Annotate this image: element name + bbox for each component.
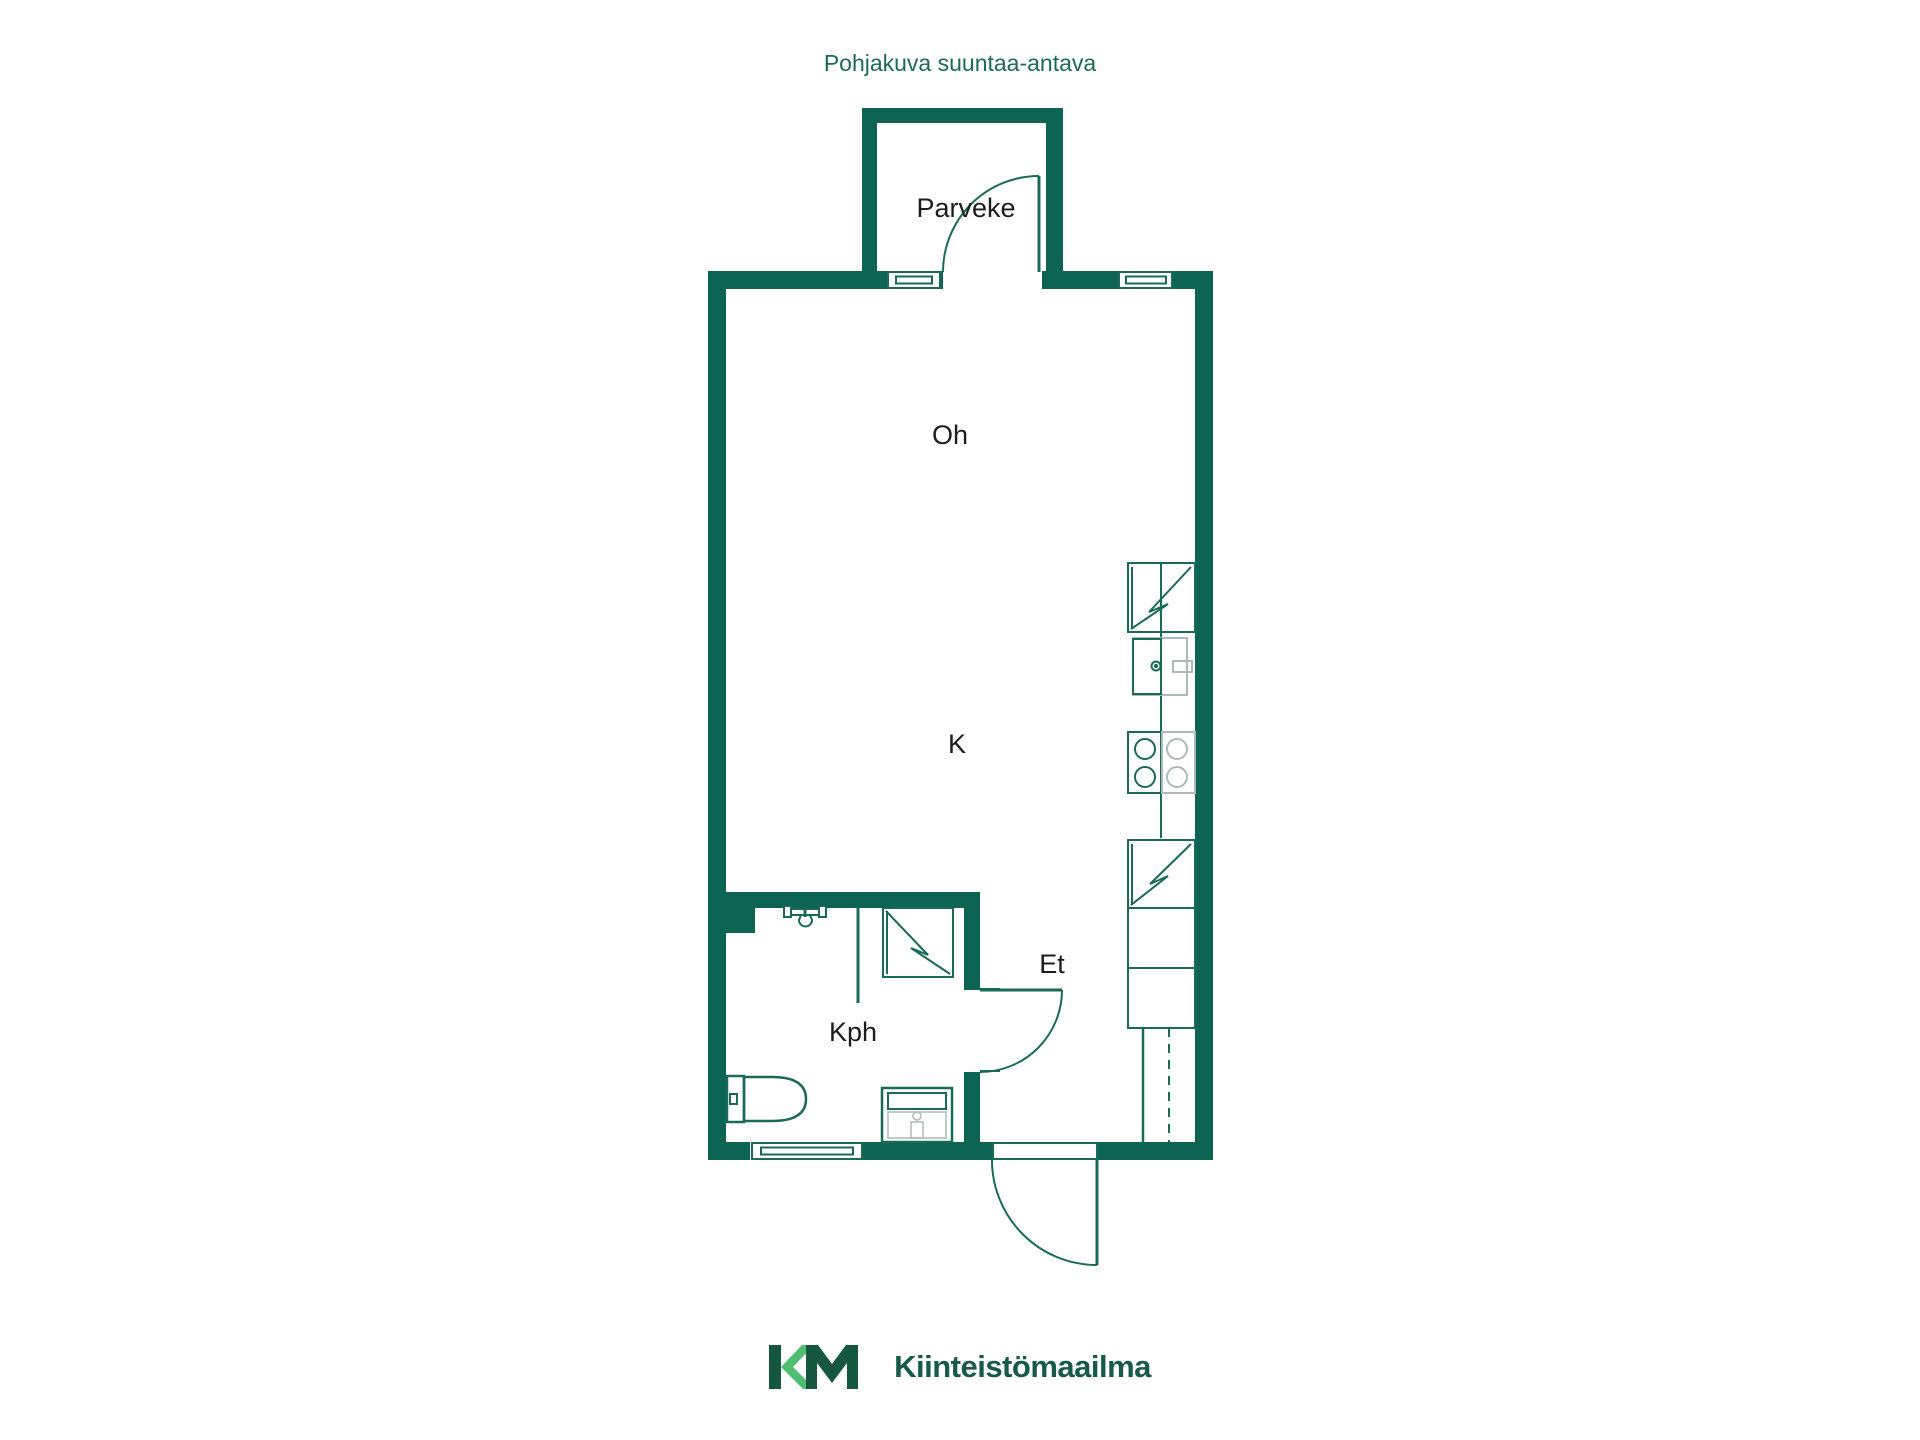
vanity-top-drawer [888, 1093, 946, 1109]
balcony-wall-left [862, 108, 877, 272]
vanity-faucet-dot [913, 1112, 921, 1120]
toilet-button [730, 1094, 737, 1104]
entry-door [992, 1143, 1097, 1265]
balcony-door-opening [943, 271, 1042, 289]
kitchen-fixtures [1128, 563, 1195, 1142]
wall-openings [750, 271, 1173, 1160]
bathroom-door-opening [964, 990, 980, 1072]
brand-footer: Kiinteistömaailma [0, 1344, 1920, 1390]
logo-m [806, 1345, 858, 1389]
bathroom-wall-top [726, 892, 980, 908]
room-label-kph: Kph [829, 1017, 877, 1047]
outer-wall-left [708, 271, 726, 1160]
balcony-door [943, 176, 1039, 272]
shower-icon [784, 906, 826, 927]
burner [1167, 739, 1187, 759]
sink-drain [1152, 662, 1161, 671]
km-logo-icon [769, 1344, 864, 1390]
cabinet [1128, 908, 1195, 968]
stove-icon [1128, 732, 1195, 793]
balcony-wall-top [862, 108, 1063, 123]
door-threshold [993, 1143, 1097, 1159]
floorplan-canvas: Parveke Oh K Et Kph [0, 0, 1920, 1440]
toilet-icon [727, 1076, 806, 1122]
cabinet [1128, 968, 1195, 1028]
floorplan-page: Pohjakuva suuntaa-antava [0, 0, 1920, 1440]
balcony-wall-right [1046, 108, 1063, 272]
appliance-zigzag [886, 911, 950, 974]
shower-bar-cap [819, 906, 826, 917]
appliance-icon [1128, 840, 1195, 908]
burner [1135, 767, 1155, 787]
vanity-box [882, 1088, 952, 1142]
room-label-parveke: Parveke [916, 193, 1015, 223]
burner [1167, 767, 1187, 787]
appliance-zigzag [1131, 844, 1191, 905]
shower-bar-cap [784, 906, 791, 917]
sink-drain-dot [1155, 665, 1157, 667]
vanity-inner-outline [888, 1112, 946, 1138]
room-labels: Parveke Oh K Et Kph [829, 193, 1065, 1047]
company-name: Kiinteistömaailma [894, 1349, 1151, 1385]
stove-box-left [1128, 732, 1162, 793]
wardrobe-dashed [1143, 1028, 1169, 1142]
washing-machine-icon [883, 908, 953, 977]
walls [708, 108, 1213, 1160]
room-label-k: K [948, 729, 966, 759]
bathroom-wall-right-upper [964, 892, 980, 990]
sink-faucet [1173, 661, 1192, 672]
bathroom-wall-right-lower [964, 1072, 980, 1142]
room-label-et: Et [1039, 949, 1065, 979]
logo-k-stem [769, 1345, 781, 1389]
vanity-sink-icon [882, 1088, 952, 1142]
bathroom-door [980, 989, 1062, 1072]
room-label-oh: Oh [932, 420, 968, 450]
vanity-faucet [911, 1122, 923, 1138]
burner [1135, 739, 1155, 759]
door-swing-arc [992, 1160, 1097, 1265]
sink-icon [1133, 638, 1192, 695]
outer-wall-right [1195, 271, 1213, 1160]
window-opening-bathroom [750, 1142, 863, 1160]
stove-box-right [1162, 732, 1195, 793]
toilet-bowl [744, 1077, 806, 1121]
windows [752, 272, 1172, 1159]
door-swing-arc [980, 990, 1062, 1072]
door-swing-arc [943, 176, 1039, 272]
